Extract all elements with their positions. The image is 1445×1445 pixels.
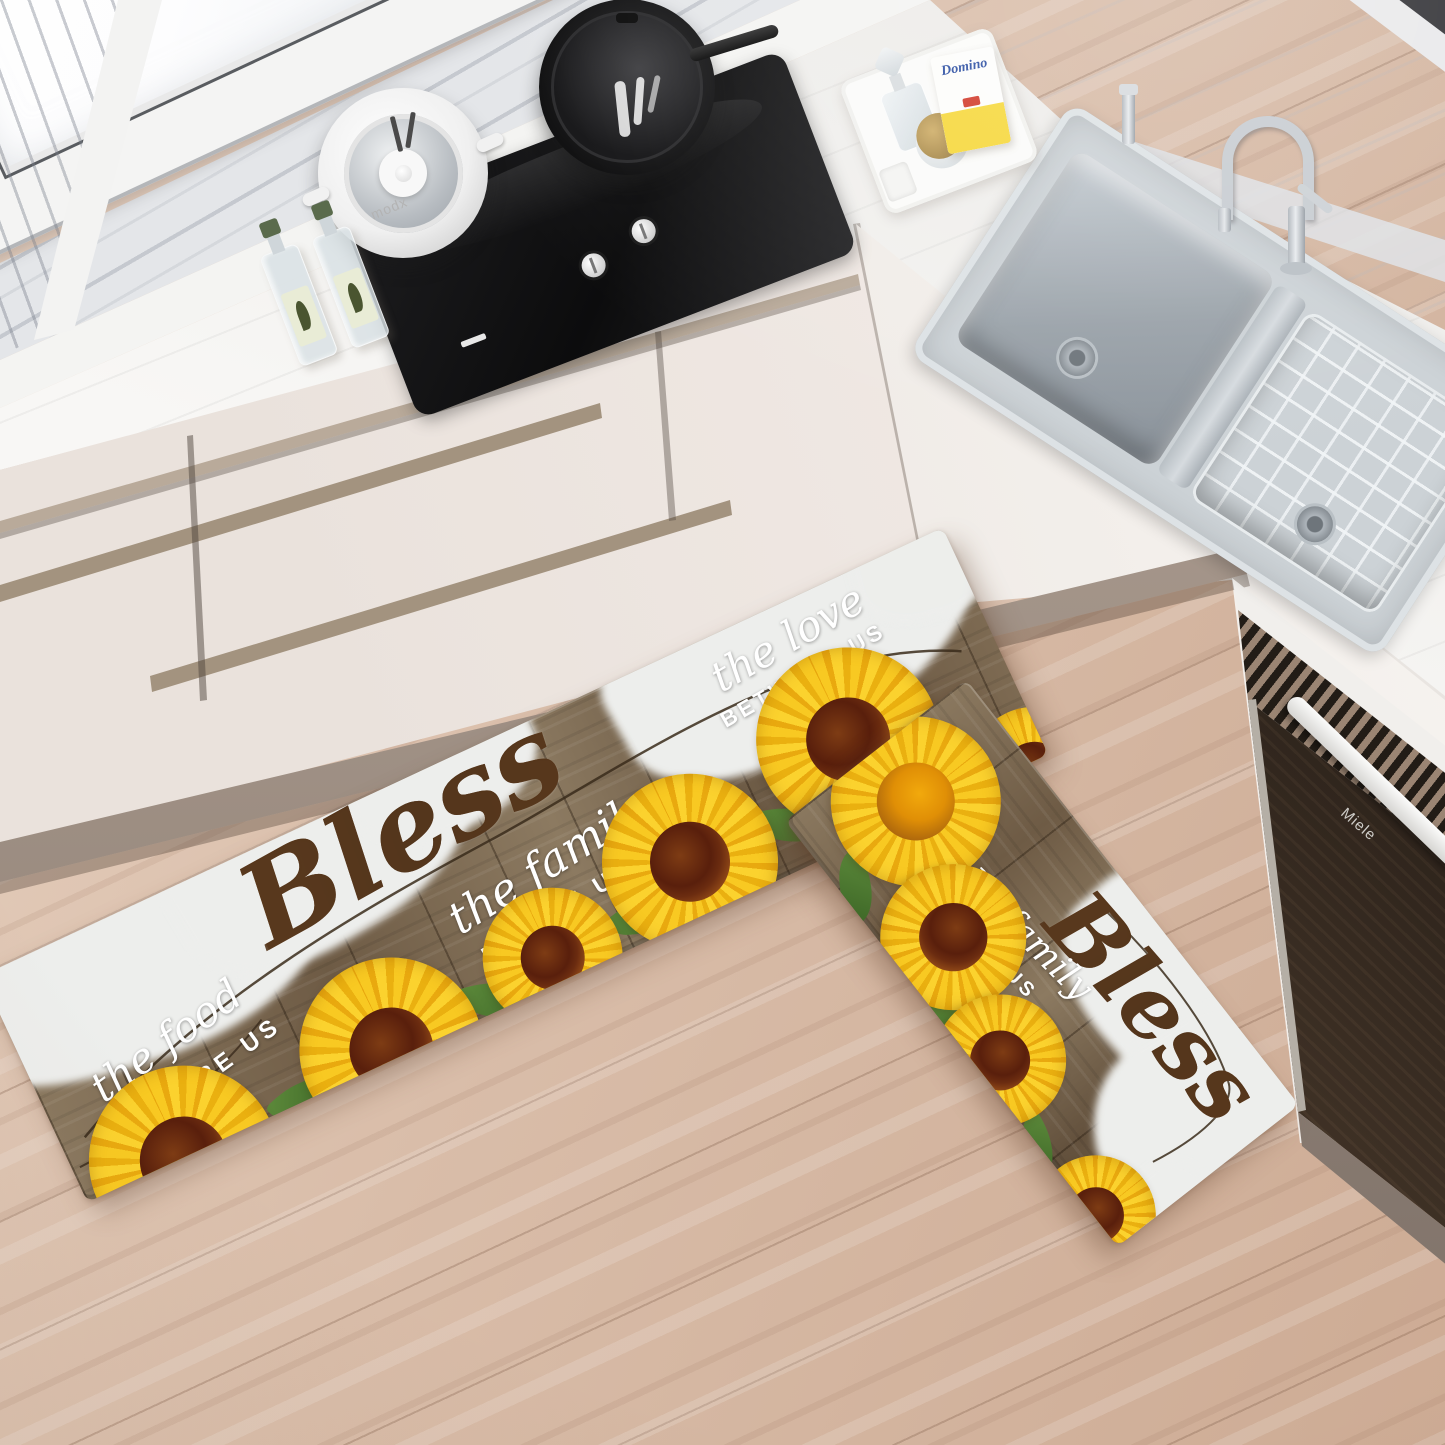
cooktop-indicator [460, 333, 486, 348]
sink-drain [1290, 499, 1340, 549]
wok-lid-knob [616, 13, 638, 23]
wok [539, 0, 715, 175]
burner-knob [628, 216, 659, 247]
faucet-body [1288, 206, 1305, 270]
kitchen-scene: Miele modx [0, 0, 1445, 1445]
sugar-box-brand: Domino [931, 54, 997, 82]
soap-dispenser-cap [1119, 84, 1138, 95]
olive-sprig [293, 299, 314, 331]
olive-sprig [345, 281, 366, 313]
faucet-base [1280, 262, 1312, 275]
stockpot-lid-knob [395, 165, 412, 182]
faucet-gooseneck [1222, 116, 1314, 220]
sugar-box-yellow-panel [941, 102, 1012, 155]
soap-dispenser [1122, 92, 1135, 144]
burner-knob [578, 250, 609, 281]
sink-drain [1052, 333, 1102, 383]
faucet-spout [1218, 208, 1231, 232]
wok-lid [551, 11, 702, 162]
small-cup [878, 160, 918, 202]
